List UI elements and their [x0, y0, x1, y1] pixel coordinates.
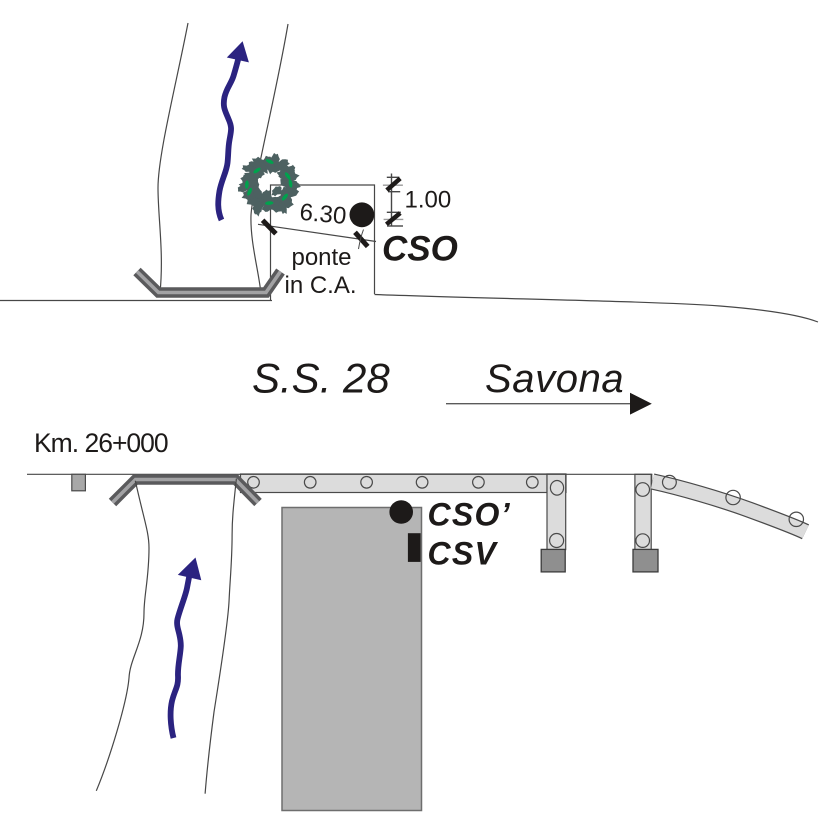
svg-text:Km. 26+000: Km. 26+000 [34, 428, 168, 458]
svg-text:1.00: 1.00 [405, 187, 452, 214]
svg-text:CSV: CSV [428, 536, 499, 572]
svg-text:ponte: ponte [291, 244, 351, 271]
svg-text:in C.A.: in C.A. [284, 272, 356, 299]
svg-text:Savona: Savona [485, 357, 624, 401]
svg-text:CSO’: CSO’ [428, 497, 511, 533]
svg-text:6.30: 6.30 [298, 199, 347, 230]
svg-text:CSO: CSO [382, 230, 458, 269]
svg-text:S.S. 28: S.S. 28 [252, 355, 390, 402]
